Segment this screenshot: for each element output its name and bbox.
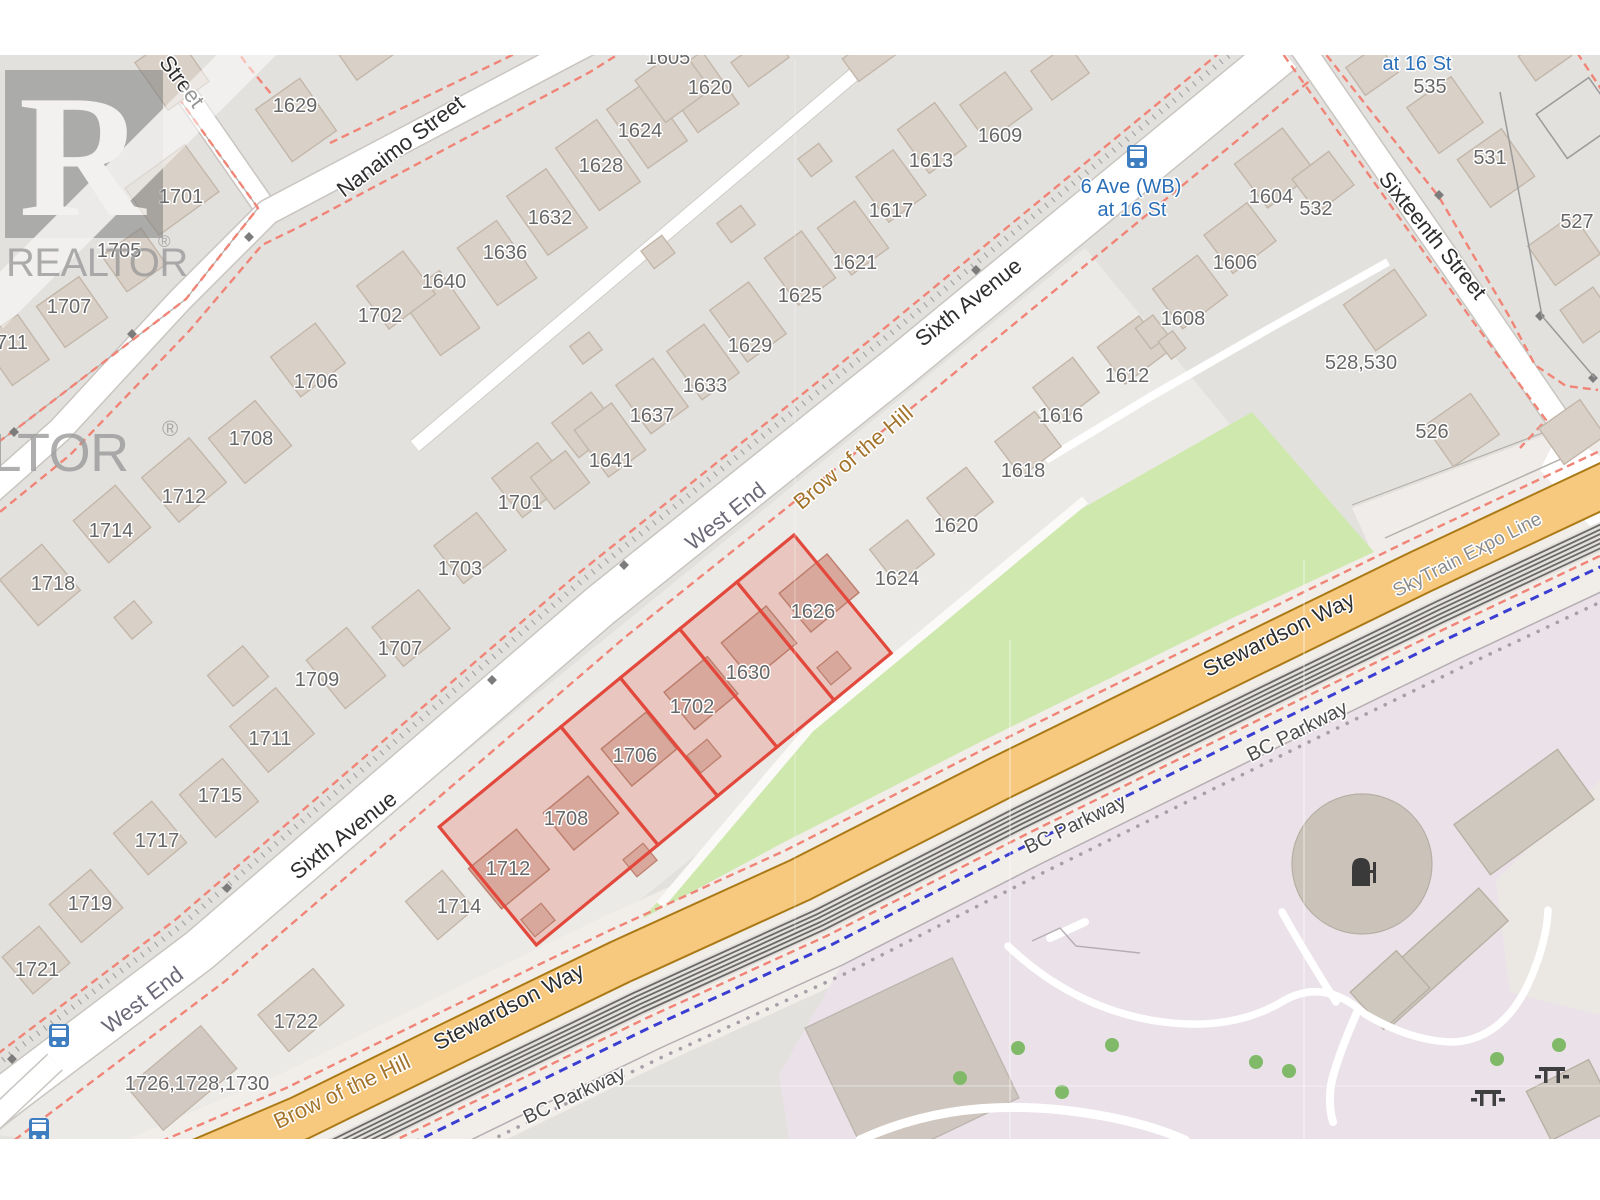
svg-text:1706: 1706 xyxy=(294,371,339,393)
svg-text:1621: 1621 xyxy=(833,252,878,274)
svg-text:1721: 1721 xyxy=(15,959,60,981)
svg-text:1702: 1702 xyxy=(358,305,403,327)
svg-text:1701: 1701 xyxy=(498,492,543,514)
svg-text:711: 711 xyxy=(0,332,28,354)
svg-text:1608: 1608 xyxy=(1161,308,1206,330)
svg-text:1609: 1609 xyxy=(978,125,1023,147)
svg-text:1628: 1628 xyxy=(579,155,624,177)
svg-text:1707: 1707 xyxy=(378,638,423,660)
svg-text:535: 535 xyxy=(1413,76,1446,98)
svg-text:532: 532 xyxy=(1299,198,1332,220)
svg-text:1708: 1708 xyxy=(229,428,274,450)
svg-text:1606: 1606 xyxy=(1213,252,1258,274)
svg-text:6 Ave (WB): 6 Ave (WB) xyxy=(1081,176,1182,198)
svg-text:REALTOR: REALTOR xyxy=(0,423,129,483)
svg-text:1711: 1711 xyxy=(248,728,291,750)
svg-text:1706: 1706 xyxy=(613,745,658,767)
svg-text:1637: 1637 xyxy=(630,405,675,427)
svg-text:®: ® xyxy=(162,416,178,441)
svg-text:1612: 1612 xyxy=(1105,365,1150,387)
svg-text:1702: 1702 xyxy=(670,696,715,718)
svg-text:®: ® xyxy=(158,232,171,251)
svg-text:527: 527 xyxy=(1560,211,1593,233)
svg-text:1604: 1604 xyxy=(1249,186,1294,208)
svg-text:1707: 1707 xyxy=(47,296,92,318)
svg-text:528,530: 528,530 xyxy=(1325,352,1397,374)
svg-text:1726,1728,1730: 1726,1728,1730 xyxy=(125,1073,270,1095)
svg-text:1718: 1718 xyxy=(31,573,76,595)
svg-text:1629: 1629 xyxy=(728,335,773,357)
svg-text:1640: 1640 xyxy=(422,271,467,293)
svg-text:1717: 1717 xyxy=(135,830,180,852)
svg-text:at 16 St: at 16 St xyxy=(1383,53,1452,75)
svg-text:1712: 1712 xyxy=(486,858,531,880)
svg-text:1722: 1722 xyxy=(274,1011,319,1033)
svg-text:1712: 1712 xyxy=(162,486,207,508)
svg-text:1701: 1701 xyxy=(159,186,204,208)
svg-text:1641: 1641 xyxy=(589,450,634,472)
svg-text:1624: 1624 xyxy=(875,568,920,590)
svg-text:1719: 1719 xyxy=(68,893,113,915)
svg-text:531: 531 xyxy=(1473,147,1506,169)
svg-text:1632: 1632 xyxy=(528,207,573,229)
svg-text:526: 526 xyxy=(1415,421,1448,443)
svg-text:1626: 1626 xyxy=(791,601,836,623)
svg-text:1633: 1633 xyxy=(683,375,728,397)
svg-text:1703: 1703 xyxy=(438,558,483,580)
svg-text:1616: 1616 xyxy=(1039,405,1084,427)
svg-text:1625: 1625 xyxy=(778,285,823,307)
svg-text:1636: 1636 xyxy=(483,242,528,264)
svg-text:1708: 1708 xyxy=(544,808,589,830)
svg-text:1620: 1620 xyxy=(688,77,733,99)
svg-text:1629: 1629 xyxy=(273,95,318,117)
svg-text:1715: 1715 xyxy=(198,785,243,807)
svg-text:1709: 1709 xyxy=(295,669,340,691)
svg-text:1618: 1618 xyxy=(1001,460,1046,482)
svg-text:1620: 1620 xyxy=(934,515,979,537)
svg-text:1714: 1714 xyxy=(89,520,134,542)
svg-text:1630: 1630 xyxy=(726,662,771,684)
svg-text:1624: 1624 xyxy=(618,120,663,142)
svg-text:1613: 1613 xyxy=(909,150,954,172)
svg-text:1617: 1617 xyxy=(869,200,914,222)
svg-text:R: R xyxy=(19,59,147,253)
svg-text:at 16 St: at 16 St xyxy=(1098,199,1167,221)
svg-text:1714: 1714 xyxy=(437,896,482,918)
